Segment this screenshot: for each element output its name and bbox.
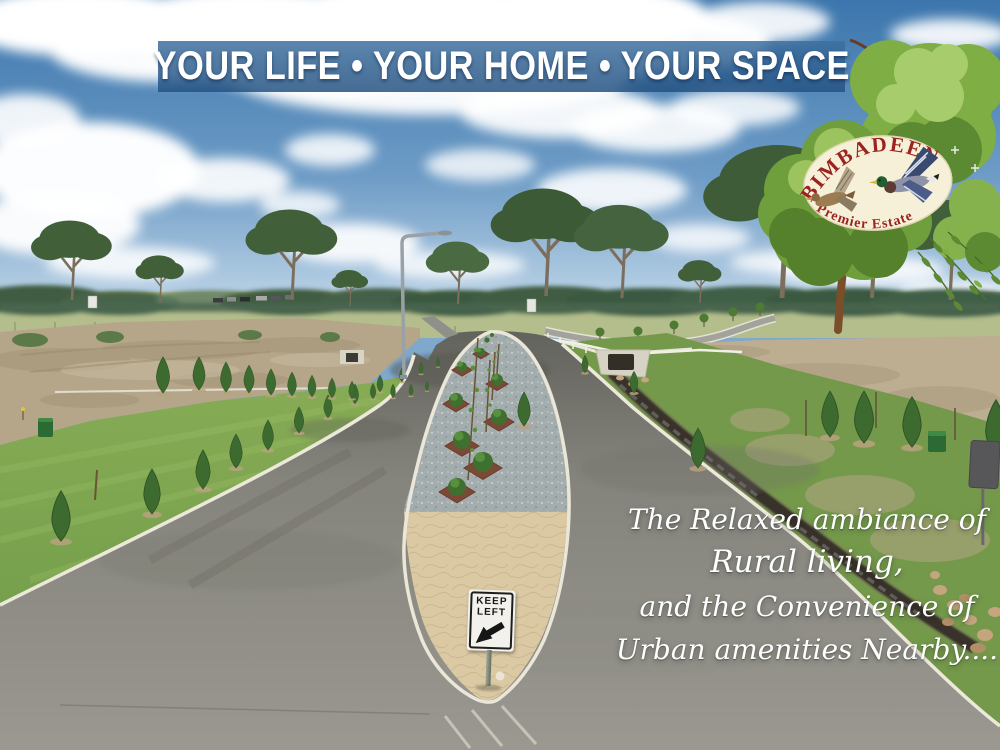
sign-shadow [475, 685, 501, 692]
tagline-line-2: Rural living, [603, 544, 1000, 580]
tagline-line-1: The Relaxed ambiance of [603, 503, 1000, 537]
keep-left-sign-face: KEEP LEFT [467, 589, 516, 652]
tagline-line-3: and the Convenience of [603, 590, 1000, 624]
keep-left-sign: KEEP LEFT [465, 589, 516, 693]
bimbadeen-estate-flyer: BIMBADEEN Premier Estate [0, 0, 1000, 750]
banner-text: YOUR LIFE • YOUR HOME • YOUR SPACE [153, 44, 849, 89]
tagline-line-4: Urban amenities Nearby.... [603, 633, 1000, 667]
banner: YOUR LIFE • YOUR HOME • YOUR SPACE [158, 41, 845, 92]
sign-word-keep: KEEP [468, 589, 516, 608]
tagline-text: The Relaxed ambiance of Rural living, an… [603, 503, 1000, 667]
sign-word-left: LEFT [468, 606, 515, 619]
keep-left-arrow-icon [472, 619, 510, 647]
culvert-left [340, 350, 364, 364]
utility-box-right [928, 431, 946, 452]
sign-post [485, 650, 491, 686]
utility-box-left [38, 418, 53, 437]
